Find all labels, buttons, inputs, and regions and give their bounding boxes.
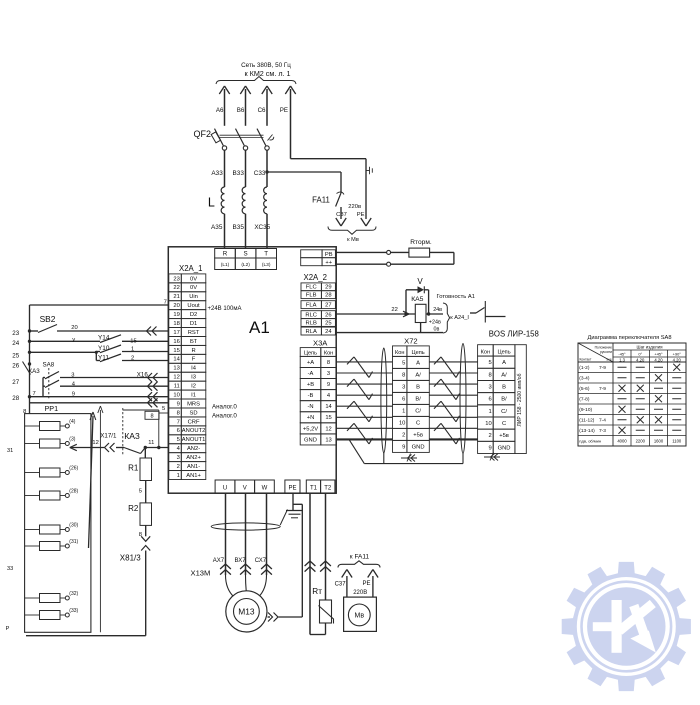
svg-text:Y11: Y11 [98, 354, 109, 361]
svg-text:к А24_I: к А24_I [450, 315, 469, 321]
svg-text:20: 20 [173, 303, 179, 309]
svg-text:SA8: SA8 [43, 361, 55, 368]
svg-text:В6: В6 [237, 107, 245, 114]
svg-text:+24в: +24в [429, 320, 441, 326]
svg-text:A: A [502, 360, 506, 366]
svg-text:+N: +N [307, 415, 315, 421]
svg-text:С37: С37 [335, 581, 347, 587]
svg-text:(3): (3) [69, 437, 75, 443]
svg-text:А33: А33 [211, 170, 223, 177]
svg-text:+B: +B [307, 382, 314, 388]
svg-text:(9-10): (9-10) [579, 407, 592, 413]
svg-text:D1: D1 [190, 321, 197, 327]
svg-text:11: 11 [148, 440, 154, 446]
svg-text:A/: A/ [501, 372, 507, 378]
svg-text:5: 5 [402, 360, 405, 366]
svg-text:1: 1 [131, 347, 134, 353]
svg-text:18: 18 [173, 321, 179, 327]
svg-text:31: 31 [7, 448, 13, 454]
svg-text:Y14: Y14 [98, 335, 110, 342]
svg-text:2: 2 [488, 433, 491, 439]
svg-text:16: 16 [173, 339, 179, 345]
svg-text:1,3: 1,3 [619, 357, 625, 362]
svg-text:4,20: 4,20 [673, 357, 682, 362]
svg-text:QF2: QF2 [193, 129, 211, 139]
svg-text:(7-8): (7-8) [579, 397, 590, 403]
svg-text:GND: GND [498, 445, 511, 451]
svg-text:9: 9 [488, 445, 491, 451]
svg-text:T2: T2 [324, 485, 332, 491]
svg-text:КА5: КА5 [411, 296, 423, 303]
svg-text:6: 6 [177, 428, 180, 434]
svg-text:X3A: X3A [313, 338, 328, 347]
svg-text:R2: R2 [128, 504, 139, 513]
svg-text:3: 3 [402, 384, 405, 390]
svg-text:15: 15 [130, 338, 136, 344]
svg-text:C/: C/ [415, 408, 421, 414]
svg-text:Rт: Rт [312, 587, 322, 596]
svg-text:10: 10 [399, 420, 405, 426]
svg-text:1: 1 [402, 408, 405, 414]
svg-text:2: 2 [177, 464, 180, 470]
svg-text:R1: R1 [128, 463, 139, 472]
svg-text:Готовность А1: Готовность А1 [437, 294, 475, 300]
svg-text:10: 10 [173, 392, 179, 398]
svg-text:КА3: КА3 [124, 431, 140, 441]
svg-text:22: 22 [391, 307, 397, 313]
svg-text:Кон: Кон [324, 351, 333, 357]
svg-text:S: S [244, 251, 248, 258]
svg-text:(26): (26) [69, 466, 78, 472]
svg-text:13: 13 [325, 437, 331, 443]
svg-text:Мв: Мв [355, 613, 365, 620]
svg-text:5: 5 [139, 489, 142, 495]
svg-text:РР1: РР1 [45, 404, 59, 413]
svg-text:6: 6 [402, 396, 405, 402]
svg-text:24: 24 [325, 329, 332, 335]
svg-text:C: C [502, 421, 506, 427]
svg-text:рукояти: рукояти [600, 350, 612, 354]
svg-text:А6: А6 [216, 107, 224, 114]
svg-text:23: 23 [12, 330, 19, 337]
svg-text:B/: B/ [501, 397, 507, 403]
svg-text:A: A [416, 360, 420, 366]
svg-text:7: 7 [33, 391, 36, 397]
svg-text:D2: D2 [190, 312, 197, 318]
svg-text:СХ7: СХ7 [255, 558, 267, 564]
svg-text:+5в: +5в [413, 432, 423, 438]
svg-text:ХС35: ХС35 [254, 224, 270, 231]
svg-text:1100: 1100 [672, 439, 682, 444]
svg-text:к Мв: к Мв [347, 237, 359, 243]
svg-text:В33: В33 [233, 170, 245, 177]
svg-text:М13: М13 [238, 607, 255, 617]
svg-text:0V: 0V [190, 276, 197, 282]
svg-text:2200: 2200 [636, 439, 646, 444]
svg-text:25: 25 [12, 353, 19, 360]
svg-text:7-9: 7-9 [599, 365, 606, 371]
svg-text:(28): (28) [69, 489, 78, 495]
svg-text:1600: 1600 [654, 439, 664, 444]
svg-text:5: 5 [177, 437, 180, 443]
svg-text:15: 15 [173, 348, 179, 354]
svg-text:+A: +A [307, 360, 314, 366]
svg-text:Кон: Кон [395, 350, 404, 356]
svg-text:X2A_2: X2A_2 [304, 273, 327, 282]
svg-text:8: 8 [150, 414, 153, 420]
svg-text:Цепь: Цепь [304, 351, 317, 357]
svg-text:21: 21 [173, 294, 179, 300]
svg-text:I2: I2 [191, 384, 196, 390]
svg-text:X2A_1: X2A_1 [179, 264, 202, 273]
svg-text:220в: 220в [348, 204, 361, 210]
svg-text:19: 19 [173, 312, 179, 318]
svg-text:2: 2 [131, 356, 134, 362]
svg-text:L: L [208, 196, 215, 210]
svg-text:AN1-: AN1- [187, 464, 200, 470]
svg-text:Uin: Uin [189, 294, 198, 300]
svg-text:5: 5 [162, 406, 165, 412]
svg-text:+45°: +45° [654, 352, 663, 357]
svg-text:12: 12 [325, 426, 331, 432]
svg-text:-45°: -45° [618, 352, 626, 357]
svg-text:10: 10 [485, 421, 491, 427]
svg-text:I4: I4 [191, 366, 197, 372]
svg-text:7-4: 7-4 [599, 418, 606, 424]
svg-text:17: 17 [173, 330, 179, 336]
svg-text:ЛИР 158 - 2500 имп/об: ЛИР 158 - 2500 имп/об [517, 373, 523, 426]
svg-text:(33): (33) [69, 608, 78, 614]
svg-text:1: 1 [177, 473, 180, 479]
svg-text:+5в: +5в [499, 433, 509, 439]
svg-text:7-3: 7-3 [599, 428, 606, 434]
svg-text:11: 11 [174, 384, 180, 390]
svg-text:SA8: SA8 [606, 358, 612, 362]
svg-text:9: 9 [402, 444, 405, 450]
svg-text:С33: С33 [254, 170, 266, 177]
svg-text:I1: I1 [191, 392, 196, 398]
svg-text:8: 8 [177, 410, 180, 416]
svg-text:B: B [416, 384, 420, 390]
svg-text:F: F [192, 357, 196, 363]
svg-text:RST: RST [188, 330, 200, 336]
svg-text:T1: T1 [310, 485, 318, 491]
svg-text:V: V [417, 277, 423, 286]
svg-text:(L1): (L1) [221, 262, 230, 268]
svg-text:CRF: CRF [188, 419, 200, 425]
svg-text:12: 12 [173, 375, 179, 381]
svg-text:V: V [243, 485, 247, 491]
svg-text:Uout: Uout [187, 303, 200, 309]
svg-text:A/: A/ [415, 372, 421, 378]
svg-text:28: 28 [325, 293, 331, 299]
svg-text:-B: -B [308, 393, 314, 399]
svg-text:BOS ЛИР-158: BOS ЛИР-158 [489, 330, 539, 339]
svg-text:А35: А35 [211, 224, 223, 231]
svg-text:33: 33 [7, 566, 13, 572]
svg-text:-N: -N [307, 404, 313, 410]
svg-text:Цепь: Цепь [497, 350, 510, 356]
svg-text:к FA11: к FA11 [350, 554, 370, 561]
svg-text:GND: GND [412, 444, 425, 450]
svg-text:(1-2): (1-2) [579, 365, 590, 371]
svg-text:Р: Р [6, 626, 10, 632]
svg-text:7-9: 7-9 [599, 386, 606, 392]
svg-text:(5-6): (5-6) [579, 386, 590, 392]
svg-text:Кон: Кон [481, 350, 490, 356]
svg-text:9: 9 [72, 392, 75, 398]
svg-text:14: 14 [325, 404, 332, 410]
svg-text:nдв, об/мин: nдв, об/мин [579, 438, 601, 443]
svg-text:AN1+: AN1+ [186, 473, 201, 479]
svg-text:FLA: FLA [306, 303, 317, 309]
svg-text:R: R [223, 251, 228, 258]
svg-text:5: 5 [488, 360, 491, 366]
svg-text:4000: 4000 [617, 439, 627, 444]
svg-text:к КМ2 см. л. 1: к КМ2 см. л. 1 [244, 69, 290, 78]
svg-text:+90°: +90° [673, 352, 682, 357]
svg-text:C: C [416, 420, 420, 426]
svg-text:ANOUT2: ANOUT2 [182, 428, 206, 434]
svg-text:у: у [72, 337, 75, 343]
svg-text:26: 26 [325, 313, 331, 319]
svg-text:0в: 0в [434, 326, 440, 332]
svg-text:9: 9 [177, 401, 180, 407]
svg-text:3: 3 [177, 455, 180, 461]
svg-text:PE: PE [280, 107, 288, 114]
svg-text:20: 20 [71, 325, 77, 331]
svg-text:3: 3 [327, 371, 330, 377]
svg-text:28: 28 [12, 395, 19, 402]
svg-text:Шаг изделия: Шаг изделия [637, 345, 664, 350]
svg-text:12: 12 [92, 440, 98, 446]
svg-text:АХ7: АХ7 [213, 558, 225, 564]
svg-text:PB: PB [325, 252, 333, 258]
svg-text:23: 23 [173, 276, 179, 282]
svg-text:15: 15 [325, 415, 331, 421]
svg-text:Х17/1: Х17/1 [100, 432, 117, 439]
svg-text:В35: В35 [233, 224, 245, 231]
svg-text:(31): (31) [69, 539, 78, 545]
svg-text:ANOUT1: ANOUT1 [182, 437, 206, 443]
svg-text:0°: 0° [638, 352, 642, 357]
svg-text:(11-12): (11-12) [579, 418, 595, 424]
svg-text:14: 14 [173, 357, 180, 363]
svg-text:26: 26 [12, 363, 19, 370]
svg-text:(30): (30) [69, 523, 78, 529]
svg-text:8: 8 [327, 360, 330, 366]
svg-text:FA11: FA11 [312, 195, 330, 204]
svg-text:GND: GND [304, 437, 317, 443]
svg-text:(L2): (L2) [241, 262, 250, 268]
svg-text:6: 6 [488, 397, 491, 403]
svg-text:Y10: Y10 [98, 345, 110, 352]
svg-text:RLC: RLC [305, 313, 317, 319]
svg-text:27: 27 [325, 303, 331, 309]
svg-text:I3: I3 [191, 375, 196, 381]
svg-text:3: 3 [71, 373, 74, 379]
svg-text:С6: С6 [258, 107, 266, 114]
svg-text:PE: PE [357, 212, 365, 218]
svg-text:U: U [223, 485, 227, 491]
svg-text:RLA: RLA [306, 329, 317, 335]
svg-text:1: 1 [488, 409, 491, 415]
svg-text:25: 25 [325, 320, 331, 326]
svg-text:Аналог.0: Аналог.0 [212, 404, 237, 411]
svg-text:T: T [264, 251, 268, 258]
svg-text:PE: PE [363, 581, 371, 587]
svg-text:С37: С37 [336, 212, 347, 218]
svg-text:А1: А1 [249, 318, 270, 337]
svg-text:13: 13 [173, 366, 179, 372]
svg-text:Цепь: Цепь [411, 350, 424, 356]
svg-text:(3-4): (3-4) [579, 376, 590, 382]
svg-text:+24В 100мА: +24В 100мА [208, 306, 242, 312]
svg-text:29: 29 [325, 285, 331, 291]
svg-text:AN2-: AN2- [187, 446, 200, 452]
svg-text:SB2: SB2 [40, 314, 56, 324]
svg-text:0V: 0V [190, 285, 197, 291]
svg-text:PE: PE [288, 485, 296, 491]
svg-text:Х81/3: Х81/3 [120, 553, 141, 562]
svg-text:ВХ7: ВХ7 [235, 558, 247, 564]
svg-text:-A: -A [308, 371, 314, 377]
svg-text:B: B [502, 385, 506, 391]
svg-text:БТ: БТ [190, 339, 198, 345]
svg-text:22: 22 [173, 285, 179, 291]
svg-text:AN2+: AN2+ [186, 455, 201, 461]
svg-text:Х13М: Х13М [191, 569, 211, 578]
svg-text:MRS: MRS [187, 401, 200, 407]
svg-text:FLB: FLB [306, 293, 317, 299]
svg-text:(32): (32) [69, 591, 78, 597]
svg-text:4,20: 4,20 [636, 357, 645, 362]
svg-text:++: ++ [325, 260, 332, 266]
svg-text:4,20: 4,20 [654, 357, 663, 362]
svg-text:8: 8 [488, 372, 491, 378]
svg-text:(L3): (L3) [262, 262, 271, 268]
svg-text:Х72: Х72 [404, 336, 418, 345]
svg-text:W: W [262, 485, 268, 491]
svg-text:27: 27 [12, 379, 19, 386]
svg-text:Х16: Х16 [137, 371, 149, 378]
svg-text:9: 9 [327, 382, 330, 388]
svg-text:(4): (4) [69, 419, 75, 425]
svg-text:Диаграмма переключателя SA8: Диаграмма переключателя SA8 [588, 335, 672, 341]
svg-text:24в: 24в [433, 307, 442, 313]
svg-text:Rторм.: Rторм. [410, 239, 432, 246]
svg-text:24: 24 [12, 340, 19, 347]
svg-text:220В: 220В [353, 590, 367, 596]
svg-text:SD: SD [190, 410, 198, 416]
svg-text:B/: B/ [415, 396, 421, 402]
svg-text:FLC: FLC [306, 285, 317, 291]
svg-text:7: 7 [164, 300, 167, 306]
svg-text:+5,2V: +5,2V [303, 426, 318, 432]
svg-text:Аналог.0: Аналог.0 [212, 413, 237, 420]
svg-text:7: 7 [177, 419, 180, 425]
svg-text:R: R [191, 348, 195, 354]
svg-text:8: 8 [402, 372, 405, 378]
svg-text:2: 2 [402, 432, 405, 438]
svg-text:3: 3 [488, 385, 491, 391]
svg-text:Контакт: Контакт [580, 358, 592, 362]
svg-text:RLB: RLB [306, 320, 317, 326]
svg-text:C/: C/ [501, 409, 507, 415]
svg-text:(13-14): (13-14) [579, 428, 595, 434]
